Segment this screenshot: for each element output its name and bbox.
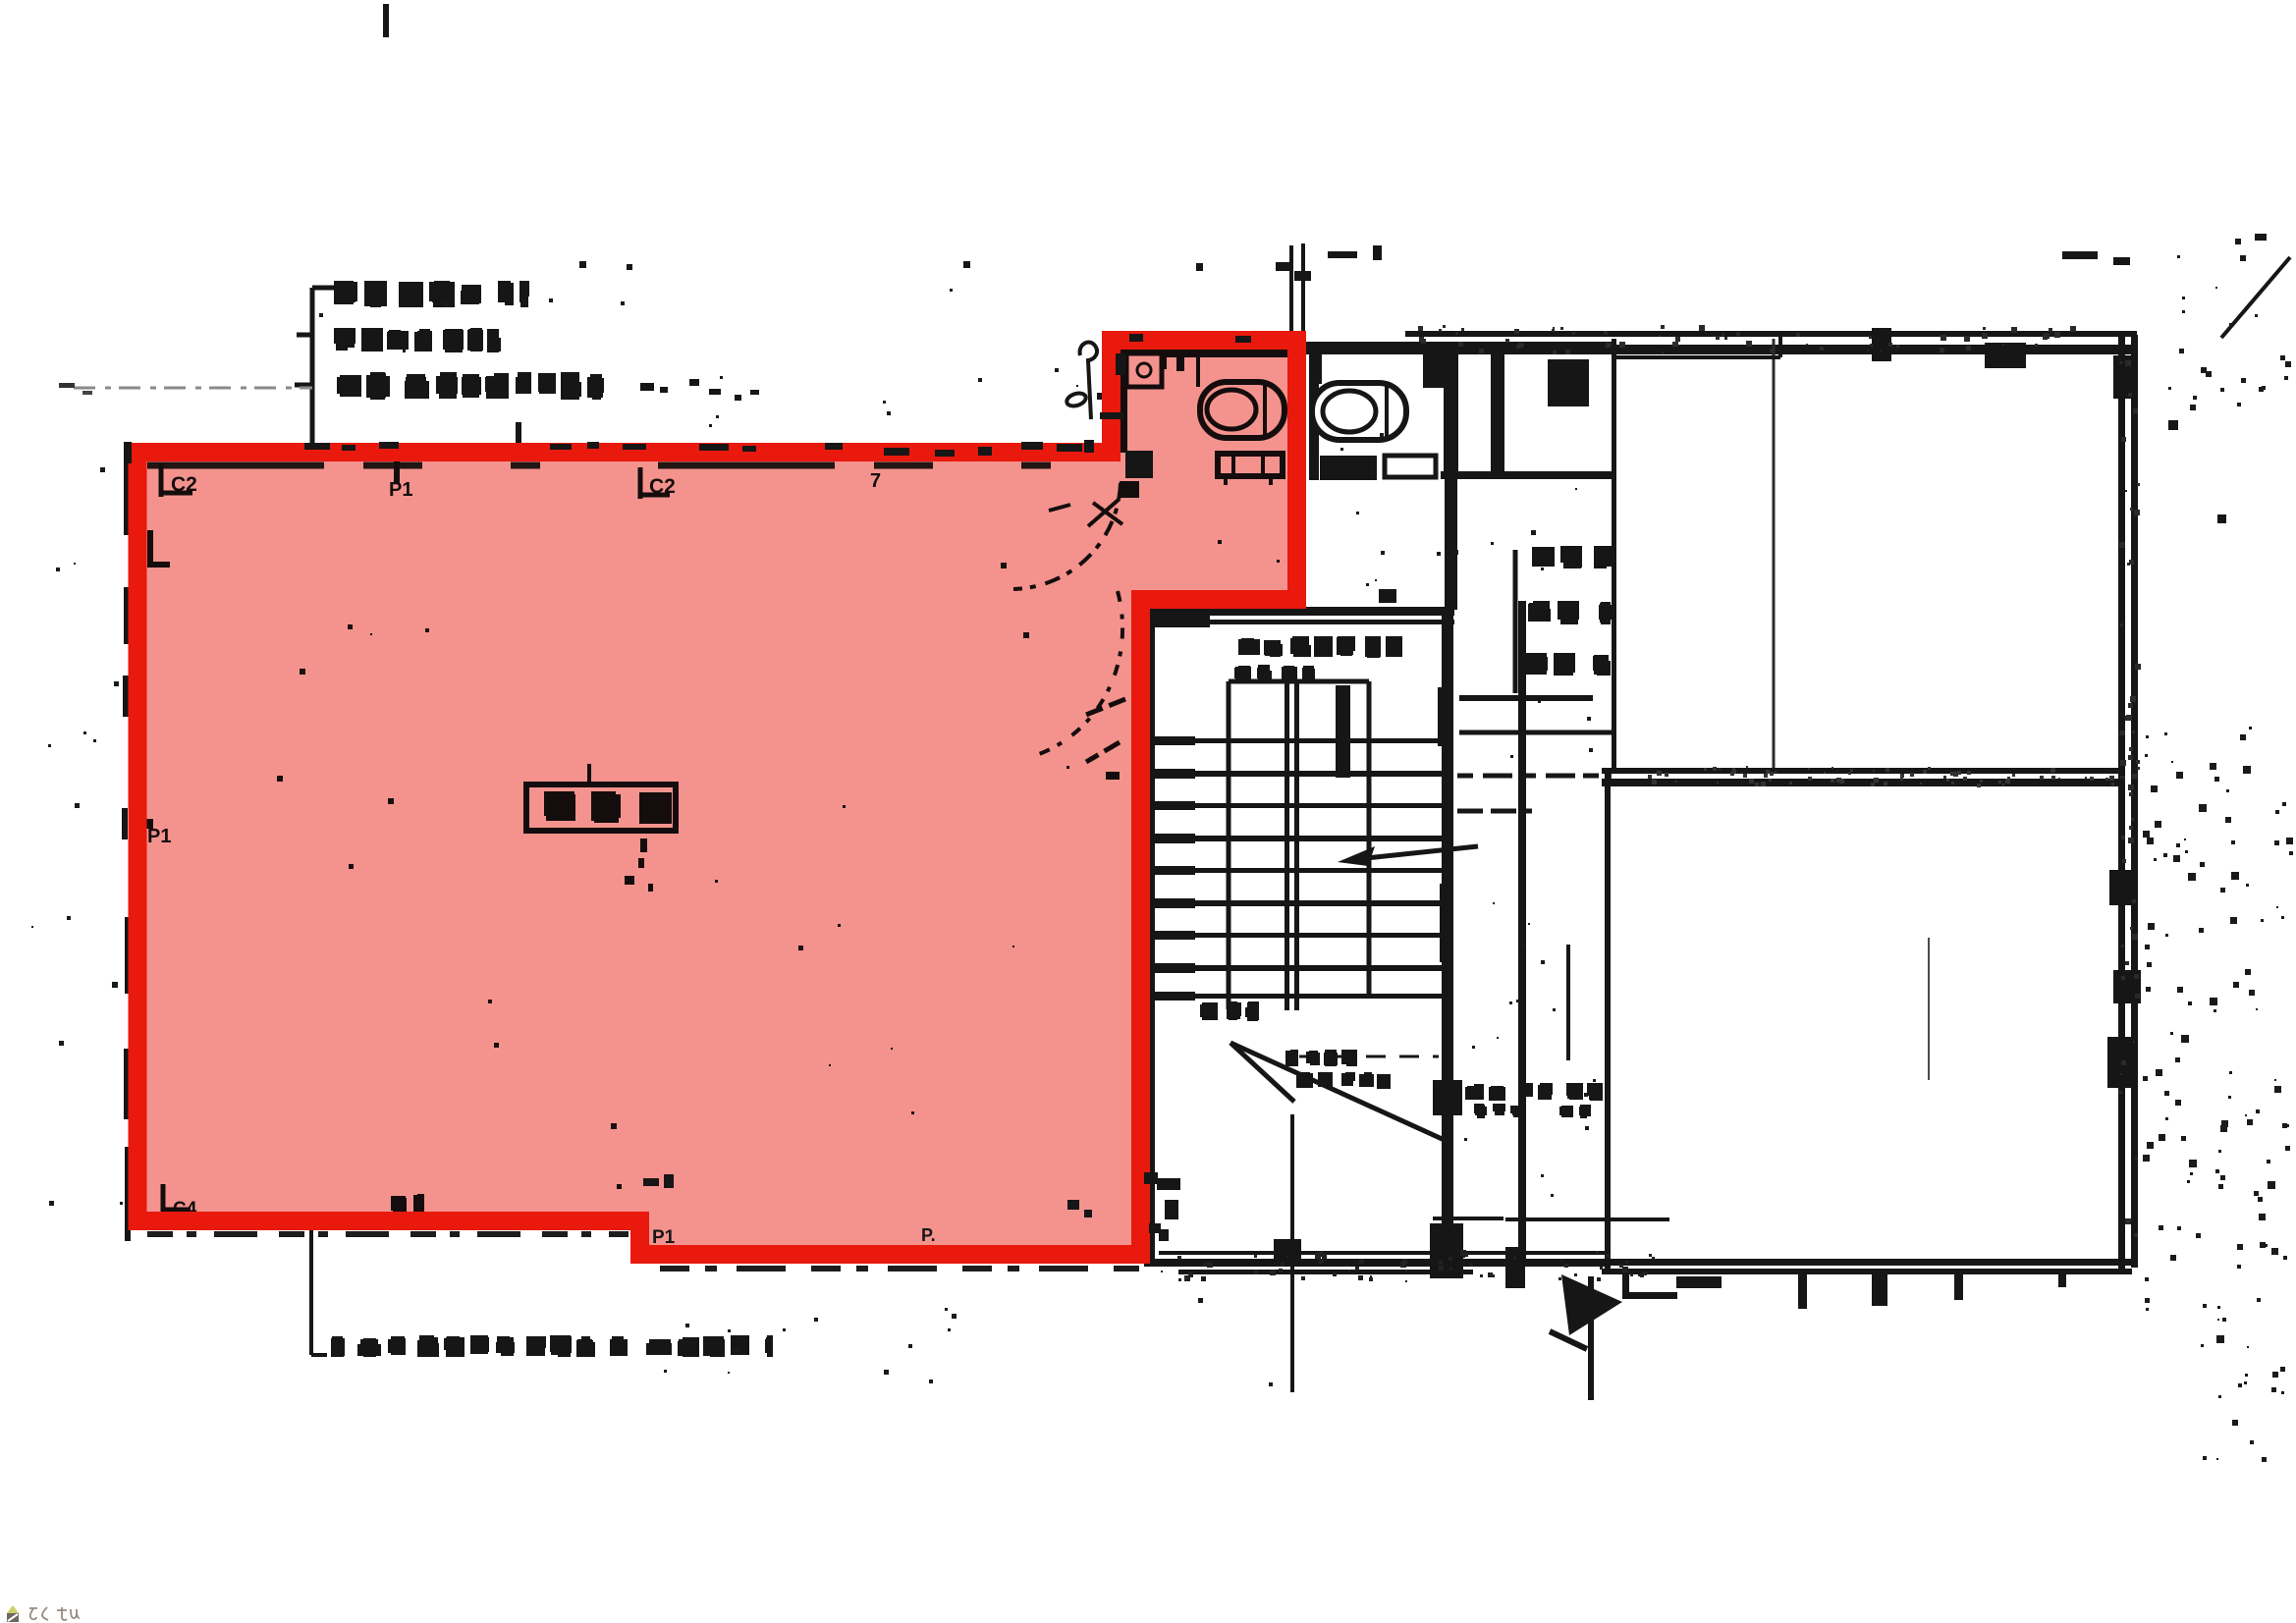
svg-text:P.: P.: [921, 1225, 936, 1245]
svg-text:P1: P1: [652, 1227, 676, 1248]
